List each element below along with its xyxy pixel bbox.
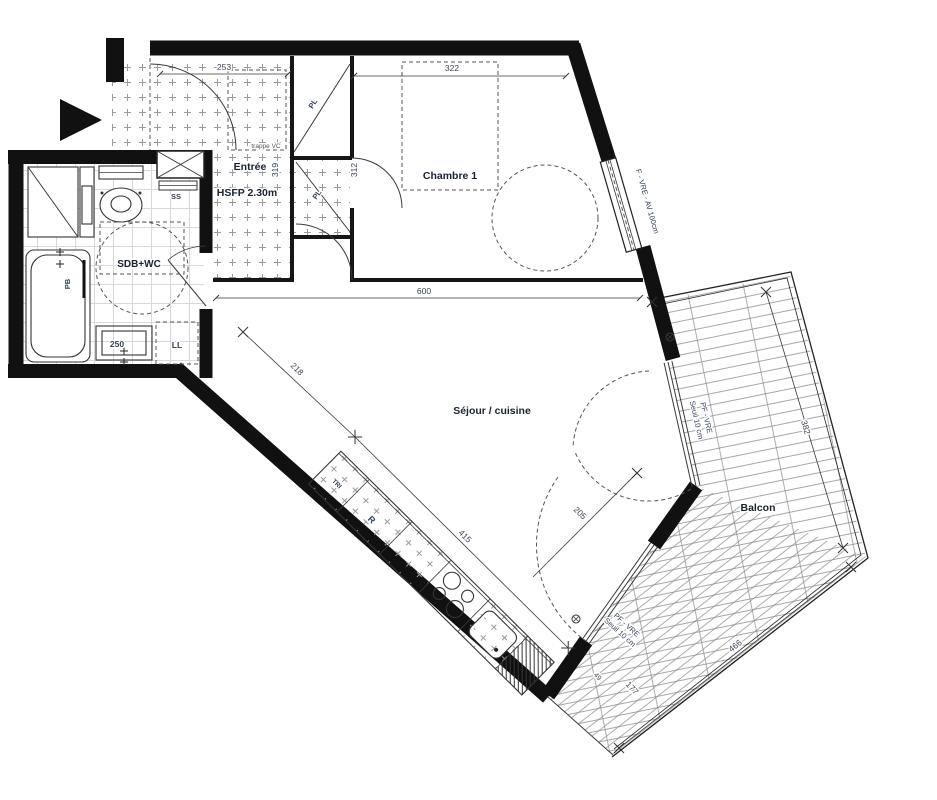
dim-chambre-width: 322 — [445, 63, 459, 73]
room-label-entree: Entrée — [234, 161, 267, 173]
bathtub-icon — [26, 248, 90, 362]
dim-entree-depth: 319 — [270, 163, 280, 177]
shower-icon — [28, 167, 78, 237]
wall-entry-stub — [106, 38, 124, 82]
floor-plan-page: TRI R 415 — [0, 0, 937, 800]
wall-slant-upper — [573, 45, 612, 170]
dim-hall-depth: 312 — [349, 163, 359, 177]
room-label-sejour: Séjour / cuisine — [453, 405, 531, 417]
fixture-label-ll: LL — [172, 340, 182, 350]
turning-circle-chambre — [492, 165, 598, 271]
ceiling-height-label: HSFP 2.30m — [217, 187, 278, 199]
room-label-sdb: SDB+WC — [117, 259, 161, 270]
room-label-balcon: Balcon — [740, 502, 775, 514]
toilet-icon — [99, 166, 143, 222]
closet-lower-floor — [294, 160, 350, 235]
towel-radiator — [159, 181, 197, 190]
fixture-label-trappe: trappe VC — [251, 143, 281, 150]
balcony-door-arc-1 — [573, 371, 649, 448]
kitchen-counter: TRI R 415 — [305, 425, 580, 698]
room-label-chambre: Chambre 1 — [423, 170, 477, 182]
window-label-chambre: F - VRE - AV 100cm — [634, 168, 661, 235]
entry-arrow-icon — [60, 99, 102, 141]
floor-plan-canvas: TRI R 415 — [0, 0, 937, 800]
dim-entree-width: 253 — [217, 62, 231, 72]
cabinet-icon — [80, 167, 94, 237]
drain-icon-2 — [572, 615, 580, 623]
fixture-label-vanity: 250 — [110, 339, 124, 349]
chambre-door-arc — [352, 158, 402, 208]
dim-kitchen-length: 415 — [457, 528, 474, 545]
duct-shaft — [157, 151, 204, 178]
fixture-label-pb: PB — [63, 278, 72, 289]
dim-balcony-door: 205 — [572, 504, 589, 521]
dim-sejour-width: 600 — [417, 286, 431, 296]
fixture-label-pl-upper: PL — [307, 97, 320, 110]
dim-sejour-diag: 218 — [289, 360, 306, 377]
fixture-label-ss: SS — [171, 192, 181, 201]
